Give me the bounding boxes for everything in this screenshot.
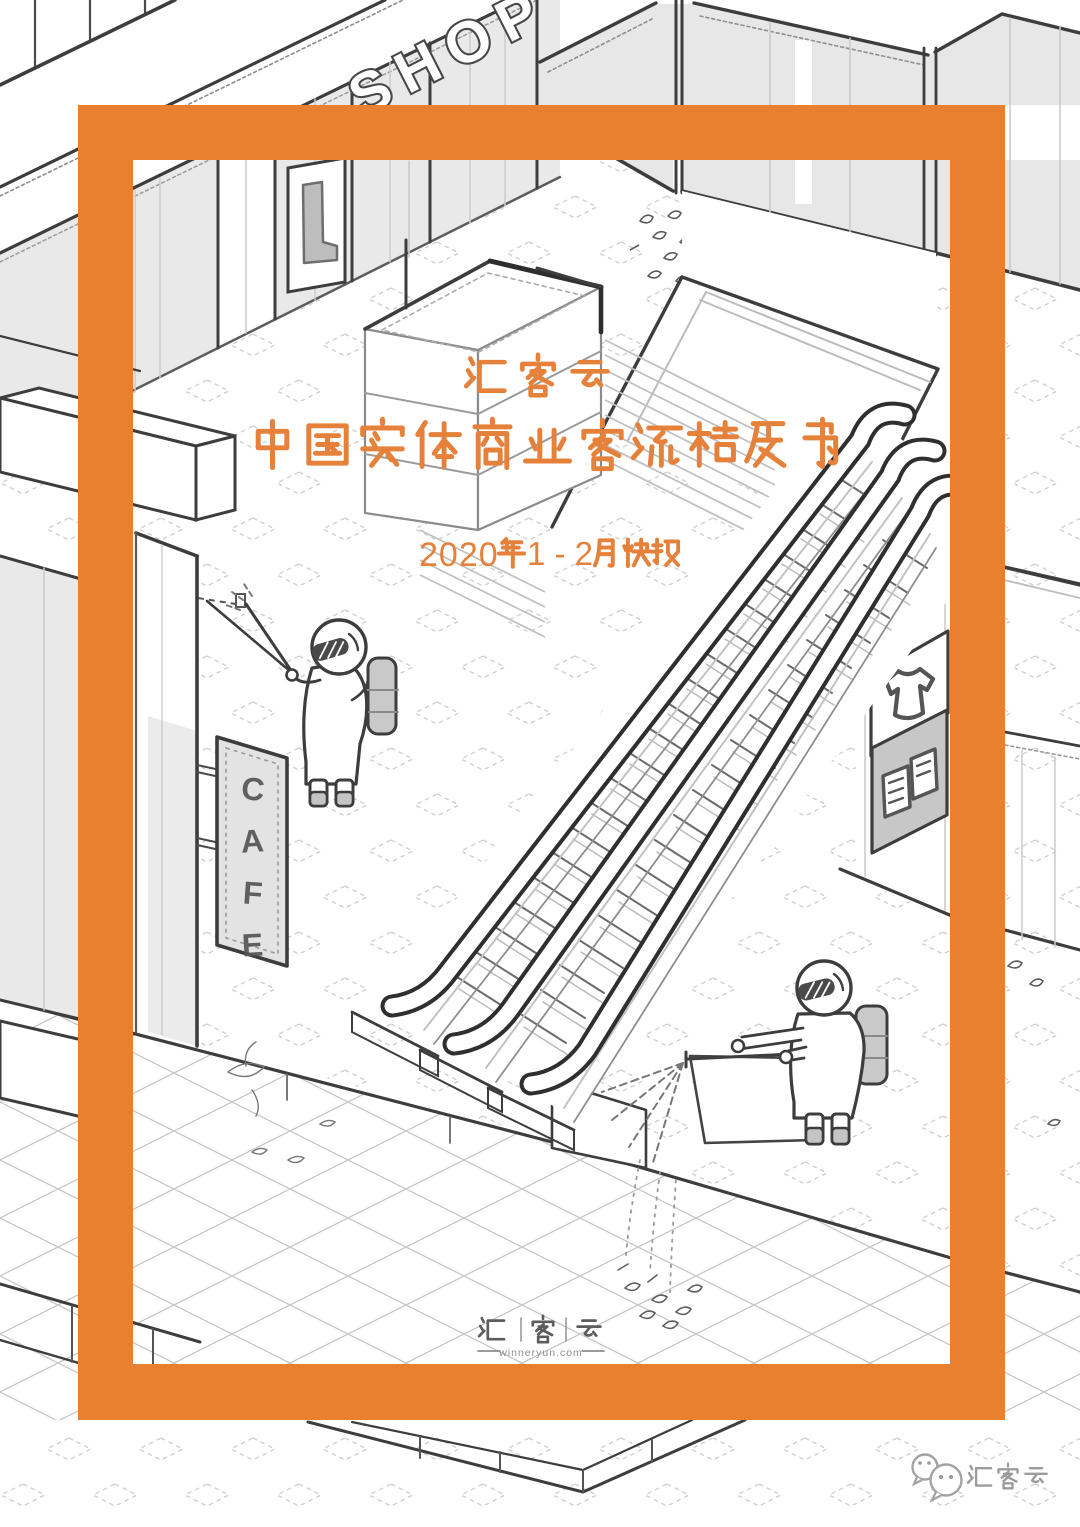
svg-text:E: E (241, 926, 264, 963)
svg-text:winneryun.com: winneryun.com (498, 1347, 583, 1359)
svg-text:F: F (242, 874, 264, 911)
svg-text:C: C (240, 770, 266, 808)
svg-text:1 - 2: 1 - 2 (527, 535, 593, 572)
svg-text:2020: 2020 (419, 536, 499, 574)
svg-text:A: A (239, 822, 265, 860)
